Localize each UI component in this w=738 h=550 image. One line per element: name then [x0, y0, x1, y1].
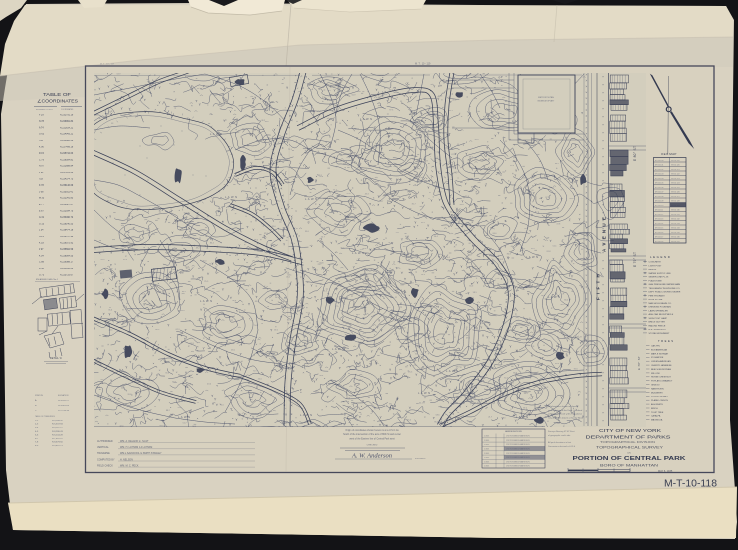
svg-text:TULIP TREE: TULIP TREE: [651, 412, 664, 414]
svg-text:STONE MONUMENT: STONE MONUMENT: [649, 333, 671, 335]
svg-text:MONUMENT POINTS: MONUMENT POINTS: [36, 109, 54, 111]
svg-text:MT.10.103: MT.10.103: [655, 174, 663, 176]
svg-text:MT.10.123: MT.10.123: [671, 178, 679, 180]
svg-text:CHECKED: CHECKED: [367, 445, 378, 447]
svg-text:N 222688.84: N 222688.84: [60, 166, 74, 168]
svg-text:WM. A. DELANO m. SmitT: WM. A. DELANO m. SmitT: [120, 440, 149, 443]
svg-text:MT.10.131: MT.10.131: [671, 214, 679, 216]
svg-text:South of the intersection: South of the intersection of the axis of…: [343, 433, 401, 436]
svg-text:N 228564.55: N 228564.55: [60, 255, 74, 257]
svg-text:AUTHORIZED: AUTHORIZED: [97, 440, 113, 443]
svg-text:VERTICAL: VERTICAL: [97, 446, 109, 449]
svg-text:POPLAR LOMBARDY: POPLAR LOMBARDY: [651, 380, 673, 383]
svg-text:ON: ON: [627, 452, 631, 454]
svg-text:PORTION OF CENTRAL PARK: PORTION OF CENTRAL PARK: [573, 456, 687, 462]
svg-text:N 226991.84: N 226991.84: [60, 121, 74, 123]
svg-text:MT.10.107: MT.10.107: [655, 192, 663, 194]
svg-text:E 87: E 87: [39, 211, 44, 213]
svg-text:A 74: A 74: [39, 126, 44, 129]
svg-text:CROTON BENCH MARK ELEV: CROTON BENCH MARK ELEV: [506, 435, 531, 438]
svg-text:C.B.M.: C.B.M.: [484, 440, 490, 442]
svg-text:MT.10.134: MT.10.134: [671, 228, 679, 230]
svg-text:F I F T H: F I F T H: [596, 273, 601, 300]
svg-text:City of Croton datum at S: City of Croton datum at Sandy Hook: [548, 416, 584, 419]
svg-text:DEPARTMENT OF PARKS: DEPARTMENT OF PARKS: [586, 435, 671, 441]
svg-text:TABLE OF TRAVERSES: TABLE OF TRAVERSES: [35, 415, 56, 418]
svg-text:M .T . 10 - 119: M .T . 10 - 119: [415, 63, 431, 66]
svg-text:HORSE CHESTNUT: HORSE CHESTNUT: [651, 377, 672, 379]
svg-text:H. NELSON: H. NELSON: [120, 458, 133, 461]
svg-text:G 73: G 73: [39, 275, 45, 277]
svg-text:LOCUST HONEY: LOCUST HONEY: [651, 396, 668, 398]
svg-text:C.B.M.: C.B.M.: [484, 461, 490, 463]
svg-text:SIGN POST LAMP: SIGN POST LAMP: [649, 317, 668, 320]
svg-text:KEY MAP: KEY MAP: [661, 152, 676, 156]
svg-text:C.B.M.: C.B.M.: [484, 436, 490, 438]
svg-text:MT.10.136: MT.10.136: [671, 237, 679, 239]
svg-text:K 54: K 54: [39, 255, 44, 257]
svg-text:TOPOGRAPHICAL DIVISION: TOPOGRAPHICAL DIVISION: [600, 441, 655, 444]
svg-text:N 226072.92: N 226072.92: [60, 243, 74, 245]
svg-text:N 236146.69: N 236146.69: [60, 185, 74, 187]
svg-text:DETAIL 'A': DETAIL 'A': [50, 356, 63, 360]
svg-text:K 90: K 90: [39, 147, 44, 149]
svg-text:MT.10.115: MT.10.115: [655, 228, 663, 230]
svg-text:BORO OF MANHATTAN: BORO OF MANHATTAN: [600, 464, 659, 468]
svg-text:D 46: D 46: [39, 268, 45, 270]
svg-text:MT.10.104: MT.10.104: [655, 178, 663, 180]
svg-text:ASH CAN RECEPTACLE: ASH CAN RECEPTACLE: [649, 313, 674, 316]
svg-text:CROTON BENCH MARK ELEV: CROTON BENCH MARK ELEV: [506, 439, 531, 442]
svg-text:A V E N U E: A V E N U E: [602, 216, 607, 252]
svg-text:T R E E S: T R E E S: [658, 339, 674, 343]
svg-text:N 225056.60: N 225056.60: [60, 268, 74, 270]
svg-text:STATION: STATION: [35, 394, 44, 397]
svg-text:F 29: F 29: [39, 115, 44, 117]
svg-text:All elevations shown are b: All elevations shown are based: [548, 405, 579, 408]
svg-text:E 79° ST: E 79° ST: [633, 252, 637, 267]
svg-text:N 6,104.28: N 6,104.28: [52, 434, 63, 436]
svg-text:L E G E N D: L E G E N D: [650, 255, 670, 259]
svg-text:Origin of coordinates shown: Origin of coordinates shown hereon is at…: [345, 429, 399, 432]
svg-text:SYCAMORE: SYCAMORE: [651, 356, 664, 359]
svg-text:C 79: C 79: [39, 159, 45, 161]
svg-text:MT.10.108: MT.10.108: [655, 196, 663, 198]
svg-text:Dimensions decimals ±0.05 ft: Dimensions decimals ±0.05 ft: [548, 445, 576, 448]
svg-text:HAWTHORN: HAWTHORN: [651, 387, 664, 390]
svg-text:N 222934.75: N 222934.75: [60, 211, 74, 213]
svg-text:MT.10.109: MT.10.109: [655, 201, 663, 203]
svg-text:ASH WHITE: ASH WHITE: [651, 403, 663, 406]
svg-text:N 78: N 78: [39, 121, 45, 123]
svg-text:N 235911.41: N 235911.41: [60, 191, 74, 193]
svg-text:MAN HOLE BASIN CO.: MAN HOLE BASIN CO.: [649, 302, 672, 305]
svg-text:K 78: K 78: [39, 185, 44, 187]
svg-text:MT.10.125: MT.10.125: [671, 187, 679, 189]
svg-text:MT.10.116: MT.10.116: [655, 232, 663, 234]
svg-text:N 223028.38: N 223028.38: [60, 140, 74, 142]
svg-text:N 5,337.94: N 5,337.94: [52, 424, 63, 426]
svg-text:N 238474.18: N 238474.18: [60, 230, 74, 232]
svg-text:E 77: E 77: [39, 204, 44, 206]
svg-text:at mean sea level y 6ft 27: at mean sea level y 6ft 2756 above: [548, 413, 583, 416]
svg-text:CROTON BENCH MARK ELEV: CROTON BENCH MARK ELEV: [506, 465, 531, 468]
svg-text:ELEVATION: ELEVATION: [58, 394, 69, 397]
svg-text:N 8,286.43: N 8,286.43: [52, 431, 63, 433]
svg-text:BIRCH: BIRCH: [651, 408, 658, 410]
svg-text:MT.10.106: MT.10.106: [655, 187, 663, 189]
svg-text:G 15: G 15: [39, 223, 45, 225]
svg-text:DRINKING FOUNTAIN: DRINKING FOUNTAIN: [649, 306, 672, 309]
svg-text:PLANE LONDON: PLANE LONDON: [651, 399, 668, 402]
svg-text:WM. M. C. PECK: WM. M. C. PECK: [120, 464, 139, 467]
svg-text:MT.10.114: MT.10.114: [655, 223, 663, 225]
svg-text:ENLARGED DIAG. No 4: ENLARGED DIAG. No 4: [36, 278, 59, 281]
svg-text:N 5,184.32: N 5,184.32: [52, 420, 63, 422]
svg-text:L 54: L 54: [39, 230, 44, 232]
svg-text:C.B.M.: C.B.M.: [484, 444, 490, 446]
svg-text:25 7233.39: 25 7233.39: [58, 410, 70, 412]
svg-text:WATER SUPPLY LINE: WATER SUPPLY LINE: [649, 272, 672, 275]
svg-text:C.B.M.: C.B.M.: [484, 466, 490, 468]
svg-text:MT.10.110: MT.10.110: [655, 205, 663, 207]
svg-text:BEECH EUROPEAN: BEECH EUROPEAN: [651, 368, 671, 371]
svg-text:MT.10.133: MT.10.133: [671, 223, 679, 225]
svg-text:CITY OF NEW YORK: CITY OF NEW YORK: [599, 428, 662, 433]
svg-text:M 33: M 33: [39, 198, 45, 200]
svg-text:R.R. SPIKE BOLT: R.R. SPIKE BOLT: [649, 329, 667, 331]
svg-text:K 18: K 18: [39, 243, 44, 245]
svg-text:N 221614.21: N 221614.21: [60, 127, 74, 129]
svg-text:MAY 6, 1935: MAY 6, 1935: [658, 470, 673, 473]
svg-text:D 15: D 15: [39, 153, 45, 155]
svg-text:LINDEN AMERICAN: LINDEN AMERICAN: [651, 360, 671, 363]
svg-text:N 224943.21: N 224943.21: [60, 134, 74, 136]
svg-text:N 223725.67: N 223725.67: [60, 275, 74, 277]
svg-text:MULBERRY: MULBERRY: [651, 392, 663, 394]
svg-text:26 5552.27: 26 5552.27: [58, 400, 70, 402]
svg-text:N 7,647.57: N 7,647.57: [52, 438, 63, 440]
svg-text:FIRE HYDRANT: FIRE HYDRANT: [649, 294, 666, 297]
svg-text:ELM AMERICAN: ELM AMERICAN: [651, 348, 668, 351]
svg-text:C.B.M.: C.B.M.: [484, 457, 490, 459]
svg-text:COORDINATES: COORDINATES: [61, 108, 74, 111]
svg-text:CATALPA: CATALPA: [651, 415, 661, 418]
svg-text:MT.10.137: MT.10.137: [671, 241, 679, 243]
svg-text:MT.10.101: MT.10.101: [655, 165, 663, 167]
svg-text:MAGNOLIA: MAGNOLIA: [651, 419, 663, 422]
svg-text:LIGHT POST: LIGHT POST: [649, 265, 663, 267]
svg-text:G 63: G 63: [39, 134, 45, 136]
svg-text:MT.10.102: MT.10.102: [655, 169, 663, 171]
svg-text:CROTON BENCH MARK ELEV: CROTON BENCH MARK ELEV: [506, 452, 531, 455]
svg-text:N 222341.83: N 222341.83: [60, 198, 74, 200]
svg-text:CONCRETE: CONCRETE: [649, 262, 662, 264]
svg-text:N 8,679.50: N 8,679.50: [52, 442, 63, 444]
svg-text:J 97: J 97: [39, 249, 44, 251]
svg-text:C.B.M.: C.B.M.: [484, 453, 490, 455]
svg-text:N 226054.81: N 226054.81: [60, 159, 74, 161]
svg-text:M .T . 10 - 117: M .T . 10 - 117: [100, 64, 115, 66]
svg-text:COMPUTED BY: COMPUTED BY: [97, 458, 115, 461]
svg-text:C.B.M.: C.B.M.: [484, 448, 490, 450]
svg-text:RAILING FENCE: RAILING FENCE: [649, 324, 666, 327]
svg-text:Surveys Bearing 47°42' East: Surveys Bearing 47°42' East: [548, 430, 575, 433]
svg-text:TELEGRAPH TELEPHONE CO.: TELEGRAPH TELEPHONE CO.: [649, 287, 681, 290]
svg-text:west of the Eastern line: west of the Eastern line of Central Park…: [349, 437, 395, 440]
svg-text:CHERRY JAPANESE: CHERRY JAPANESE: [651, 364, 672, 367]
svg-text:OAK PIN: OAK PIN: [651, 345, 660, 348]
svg-text:DEPT PUBLIC WORKS SEWER: DEPT PUBLIC WORKS SEWER: [649, 292, 681, 294]
svg-text:N 235662.59: N 235662.59: [60, 249, 74, 251]
svg-text:MT.10.124: MT.10.124: [671, 183, 679, 185]
svg-text:N 227499.16: N 227499.16: [60, 147, 74, 149]
svg-text:N 226140.53: N 226140.53: [60, 223, 74, 225]
svg-text:MT.10.128: MT.10.128: [671, 201, 679, 203]
svg-text:J 91: J 91: [39, 172, 44, 174]
svg-text:26 5561.63: 26 5561.63: [58, 405, 70, 407]
svg-text:A. W. Anderson: A. W. Anderson: [351, 453, 392, 460]
svg-text:N 224374.73: N 224374.73: [60, 179, 74, 181]
svg-text:MT.10.135: MT.10.135: [671, 232, 679, 234]
svg-text:CROTON BENCH MARK ELEV: CROTON BENCH MARK ELEV: [506, 460, 531, 463]
svg-text:TOPOGRAPHICAL SURVEY: TOPOGRAPHICAL SURVEY: [596, 446, 664, 450]
svg-text:BRICK GUTTER: BRICK GUTTER: [649, 322, 666, 324]
svg-text:MT.10.122: MT.10.122: [671, 174, 679, 176]
svg-text:ENGINEER: ENGINEER: [415, 458, 426, 460]
svg-text:E 80° ST: E 80° ST: [633, 146, 637, 161]
svg-text:All park elevations in fee: All park elevations in feet: [548, 441, 572, 444]
svg-text:N 225744.63: N 225744.63: [60, 153, 74, 155]
svg-text:N 233490.72: N 233490.72: [60, 217, 74, 219]
svg-text:TRAVERSE: TRAVERSE: [97, 452, 110, 455]
svg-text:N 5,807.75: N 5,807.75: [52, 445, 63, 447]
svg-text:on the datum of the Dept.: on the datum of the Dept. Standard: [548, 409, 583, 412]
svg-text:M-T-10-118: M-T-10-118: [664, 478, 717, 490]
svg-text:MT.10.112: MT.10.112: [655, 214, 663, 216]
svg-text:SEWER LINE F.L.W.: SEWER LINE F.L.W.: [649, 277, 670, 279]
svg-text:MT.10.130: MT.10.130: [671, 210, 679, 212]
svg-text:N 5,112.72: N 5,112.72: [52, 427, 63, 429]
svg-text:E 78° ST: E 78° ST: [637, 356, 641, 370]
svg-text:MT.10.113: MT.10.113: [655, 219, 663, 221]
svg-text:of geographic north side: of geographic north side: [548, 434, 571, 437]
svg-text:MT.10.117: MT.10.117: [655, 237, 663, 239]
svg-text:C 88: C 88: [39, 262, 45, 264]
svg-text:N 231791.19: N 231791.19: [60, 115, 74, 117]
svg-text:BENCH: BENCH: [649, 269, 657, 271]
svg-text:J 68: J 68: [39, 191, 44, 193]
svg-text:MT.10.127: MT.10.127: [671, 196, 679, 198]
svg-text:MT.10.105: MT.10.105: [655, 183, 663, 185]
svg-text:MT.10.119: MT.10.119: [671, 160, 679, 162]
svg-text:N 97: N 97: [39, 166, 45, 168]
svg-text:GAS PRESSURE WATER MAIN: GAS PRESSURE WATER MAIN: [649, 283, 681, 286]
svg-text:FIELD CHECK: FIELD CHECK: [97, 464, 113, 467]
svg-text:∠COORDINATES: ∠COORDINATES: [37, 99, 78, 104]
svg-text:N 227101.22: N 227101.22: [60, 172, 74, 174]
svg-text:MT.10.126: MT.10.126: [671, 192, 679, 194]
svg-text:ABBREVIATIONS: ABBREVIATIONS: [505, 430, 522, 433]
svg-text:LAWN SPRINKLER: LAWN SPRINKLER: [649, 309, 669, 312]
svg-text:CROTON BENCH MARK ELEV: CROTON BENCH MARK ELEV: [506, 443, 531, 446]
svg-text:G 31: G 31: [39, 217, 45, 219]
svg-text:MAPLE NORWAY: MAPLE NORWAY: [651, 352, 669, 355]
svg-text:MT.10.118: MT.10.118: [655, 241, 663, 243]
svg-text:MT.10.111: MT.10.111: [655, 210, 663, 212]
svg-text:MT.10.132: MT.10.132: [671, 219, 679, 221]
svg-text:N 21: N 21: [39, 236, 45, 238]
svg-text:FLAGSTONE: FLAGSTONE: [649, 279, 663, 282]
svg-text:MT.10.100: MT.10.100: [655, 160, 663, 162]
svg-text:MT.10.120: MT.10.120: [671, 165, 679, 167]
svg-text:N 229088.17: N 229088.17: [60, 262, 74, 264]
svg-text:MT.10.121: MT.10.121: [671, 169, 679, 171]
svg-text:GINKGO: GINKGO: [651, 385, 660, 387]
svg-text:TABLE OF: TABLE OF: [43, 92, 71, 97]
svg-text:WILLOW: WILLOW: [651, 373, 661, 375]
svg-text:N 236627.67: N 236627.67: [60, 204, 74, 206]
svg-text:N 238767.99: N 238767.99: [60, 236, 74, 238]
svg-text:BLUE STONE: BLUE STONE: [649, 299, 663, 301]
